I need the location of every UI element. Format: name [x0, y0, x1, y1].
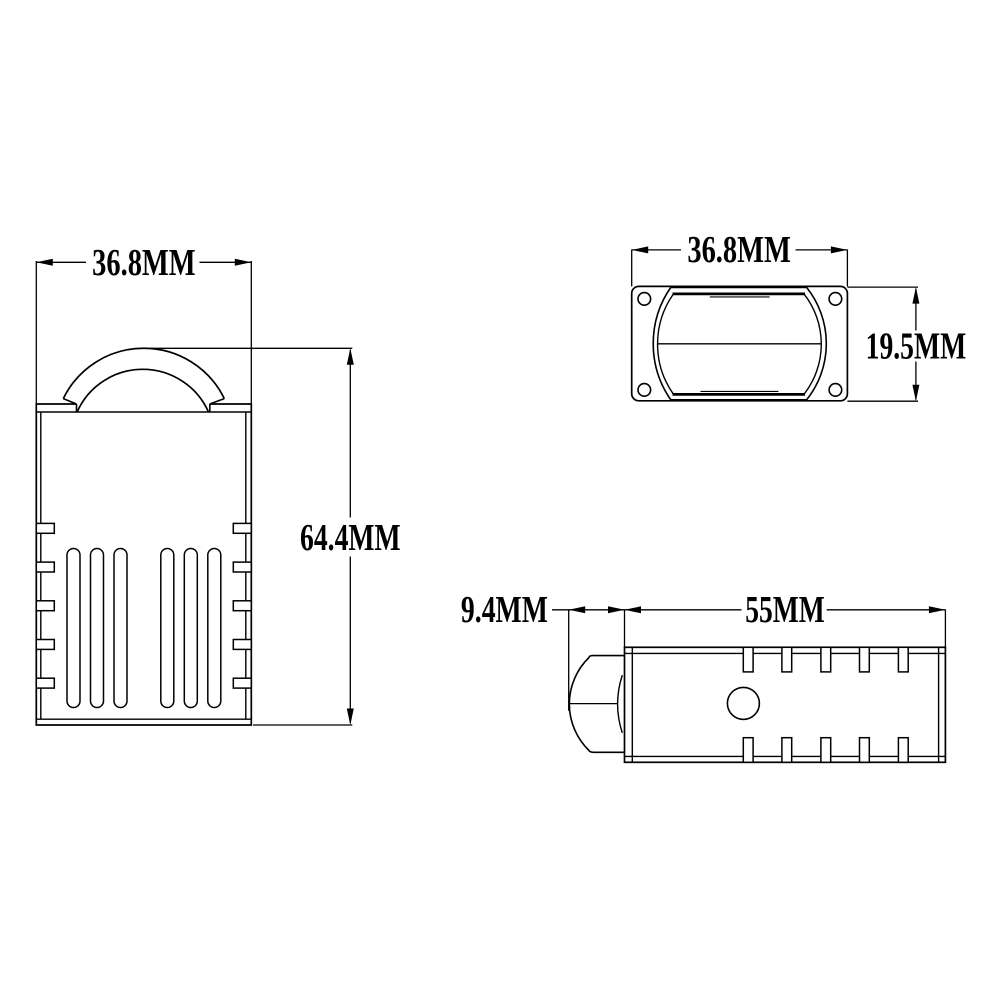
svg-text:36.8MM: 36.8MM: [687, 229, 791, 271]
svg-text:55MM: 55MM: [745, 589, 825, 631]
svg-text:36.8MM: 36.8MM: [92, 242, 196, 284]
svg-text:9.4MM: 9.4MM: [461, 589, 548, 631]
svg-text:19.5MM: 19.5MM: [866, 326, 967, 368]
svg-text:64.4MM: 64.4MM: [300, 517, 401, 559]
